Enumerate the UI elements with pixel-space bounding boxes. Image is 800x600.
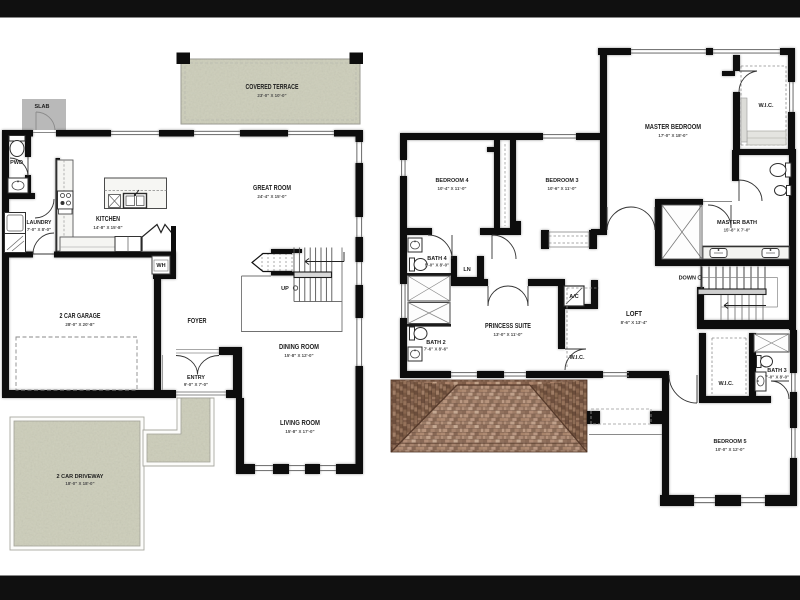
- svg-text:28'-0" X 20'-8": 28'-0" X 20'-8": [65, 322, 94, 327]
- svg-text:10'-6" X 11'-0": 10'-6" X 11'-0": [548, 186, 577, 191]
- svg-text:SLAB: SLAB: [35, 104, 50, 110]
- svg-text:7'-0" X 8'-0": 7'-0" X 8'-0": [27, 227, 51, 232]
- svg-text:MASTER BATH: MASTER BATH: [717, 220, 757, 226]
- svg-text:W.I.C.: W.I.C.: [759, 103, 774, 109]
- svg-text:24'-4" X 15'-0": 24'-4" X 15'-0": [257, 194, 286, 199]
- svg-text:W.I.C.: W.I.C.: [570, 355, 585, 361]
- svg-text:10'-0" X 12'-0": 10'-0" X 12'-0": [715, 447, 744, 452]
- svg-text:18'-0" X 18'-0": 18'-0" X 18'-0": [65, 481, 94, 486]
- svg-text:WH: WH: [156, 263, 165, 269]
- svg-text:DOWN: DOWN: [679, 276, 696, 282]
- svg-text:BEDROOM 4: BEDROOM 4: [436, 178, 470, 184]
- svg-text:KITCHEN: KITCHEN: [96, 216, 120, 223]
- svg-text:LAUNDRY: LAUNDRY: [27, 220, 52, 226]
- svg-text:BEDROOM 3: BEDROOM 3: [546, 178, 579, 184]
- svg-text:9'-0" X 7'-0": 9'-0" X 7'-0": [184, 382, 208, 387]
- svg-text:15'-8" X 7'-0": 15'-8" X 7'-0": [724, 228, 751, 233]
- svg-text:23'-0" X 10'-0": 23'-0" X 10'-0": [257, 93, 286, 98]
- svg-text:BATH 2: BATH 2: [426, 340, 445, 346]
- svg-text:17'-0" X 18'-0": 17'-0" X 18'-0": [658, 133, 687, 138]
- svg-text:LN: LN: [463, 267, 470, 273]
- svg-text:LOFT: LOFT: [626, 311, 643, 318]
- svg-text:LIVING ROOM: LIVING ROOM: [280, 420, 320, 427]
- svg-text:COVERED TERRACE: COVERED TERRACE: [246, 84, 299, 91]
- svg-text:5'-0" X 8'-0": 5'-0" X 8'-0": [425, 263, 449, 268]
- svg-text:2 CAR GARAGE: 2 CAR GARAGE: [60, 313, 101, 320]
- svg-text:UP: UP: [281, 286, 289, 292]
- svg-text:PRINCESS SUITE: PRINCESS SUITE: [485, 323, 531, 330]
- svg-text:14'-8" X 15'-8": 14'-8" X 15'-8": [93, 225, 122, 230]
- svg-text:A/C: A/C: [569, 294, 579, 300]
- svg-text:PWD: PWD: [10, 160, 23, 166]
- svg-text:15'-8" X 17'-0": 15'-8" X 17'-0": [285, 429, 314, 434]
- svg-text:MASTER BEDROOM: MASTER BEDROOM: [645, 124, 701, 131]
- svg-text:7'-6" X 8'-6": 7'-6" X 8'-6": [424, 347, 448, 352]
- svg-text:10'-4" X 11'-0": 10'-4" X 11'-0": [438, 186, 467, 191]
- svg-text:ENTRY: ENTRY: [187, 375, 205, 381]
- svg-text:W.I.C.: W.I.C.: [719, 381, 734, 387]
- svg-text:GREAT ROOM: GREAT ROOM: [253, 185, 291, 192]
- svg-text:15'-8" X 12'-0": 15'-8" X 12'-0": [284, 353, 313, 358]
- svg-text:8'-6" X 13'-4": 8'-6" X 13'-4": [621, 320, 648, 325]
- svg-text:FOYER: FOYER: [188, 318, 207, 325]
- svg-text:BATH 3: BATH 3: [767, 368, 786, 374]
- svg-text:BATH 4: BATH 4: [427, 256, 447, 262]
- svg-text:DINING ROOM: DINING ROOM: [279, 344, 319, 351]
- svg-text:13'-0" X 11'-0": 13'-0" X 11'-0": [494, 332, 523, 337]
- svg-text:BEDROOM 5: BEDROOM 5: [714, 439, 747, 445]
- svg-text:2 CAR DRIVEWAY: 2 CAR DRIVEWAY: [57, 474, 104, 480]
- svg-text:7'-0" X 8'-0": 7'-0" X 8'-0": [765, 375, 789, 380]
